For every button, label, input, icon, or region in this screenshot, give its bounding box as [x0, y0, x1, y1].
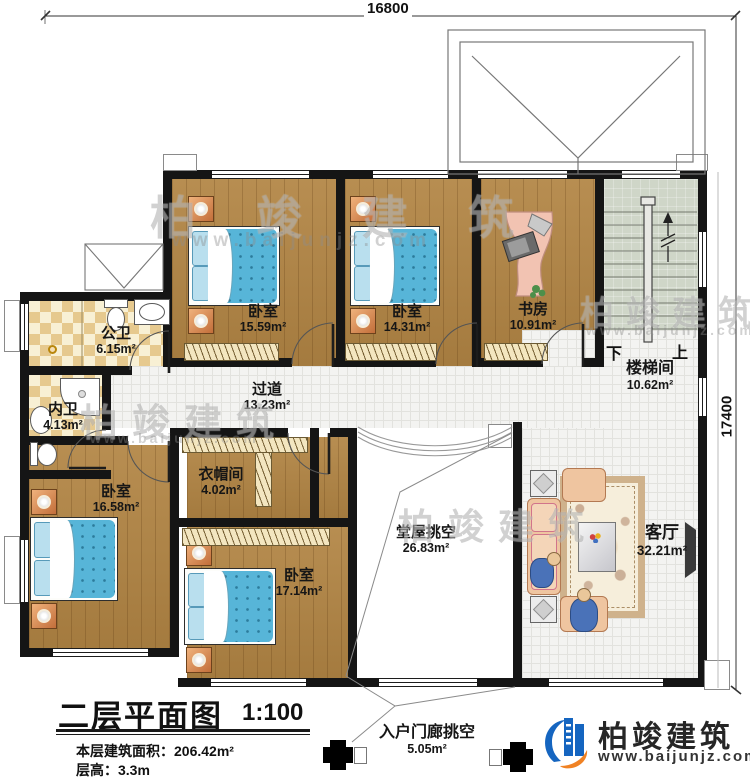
toilet-bowl [37, 443, 57, 466]
wall [348, 428, 357, 687]
porch-column [503, 742, 533, 772]
floor-area-line: 本层建筑面积：206.42m² [76, 741, 234, 761]
wardrobe [182, 528, 330, 546]
room-label-stairwell: 楼梯间10.62m² [626, 360, 674, 393]
wall [310, 428, 319, 527]
room-label-living-room: 客厅32.21m² [637, 523, 687, 558]
nightstand [350, 308, 376, 334]
wall [306, 678, 379, 687]
title-underline-thin [56, 734, 310, 735]
wardrobe [345, 343, 437, 361]
wall [170, 428, 179, 657]
arch-pier [488, 424, 512, 448]
wall [178, 678, 211, 687]
window [698, 232, 707, 287]
sink-basin [139, 303, 165, 321]
stair-up-label: 上 [672, 339, 688, 363]
window-sill [4, 536, 20, 604]
column-bracket [354, 747, 367, 764]
window [211, 678, 306, 687]
room-label-bedroom-bottom: 卧室17.14m² [276, 567, 323, 599]
window [53, 648, 148, 657]
company-website: www.baijunjz.com [598, 748, 750, 765]
side-table [530, 470, 557, 497]
title-underline-thick [56, 729, 310, 732]
watermark-url: www.baijunjz.com [90, 430, 259, 446]
nightstand [186, 647, 212, 673]
window-sill [676, 154, 708, 171]
watermark-url: www.baijunjz.com [172, 230, 432, 252]
window-sill [704, 660, 730, 690]
window [20, 540, 29, 602]
bed [184, 568, 276, 645]
wall [20, 470, 111, 479]
person [566, 588, 602, 632]
bed-sheet [204, 571, 228, 642]
window-sill [4, 300, 20, 352]
room-label-study: 书房10.91m² [510, 301, 557, 333]
plan-scale: 1:100 [242, 699, 303, 727]
column-bracket [489, 749, 502, 766]
window [698, 378, 707, 416]
bed [30, 517, 118, 601]
watermark-text: 柏竣建筑 [398, 498, 598, 550]
person [530, 550, 562, 588]
dimension-right: 17400 [718, 396, 735, 438]
wall [178, 518, 357, 527]
wall [513, 422, 522, 687]
room-label-private-bath: 内卫4.13m² [43, 401, 83, 433]
window [373, 170, 448, 179]
window-sill [163, 154, 197, 171]
floor-plan-canvas: 柏竣建筑 www.baijunjz.com 柏竣建筑 www.baijunjz.… [0, 0, 750, 781]
nightstand [31, 603, 57, 629]
room-label-bedroom-left: 卧室16.58m² [93, 483, 140, 515]
stair-down-label: 下 [606, 340, 622, 364]
window [379, 678, 477, 687]
window [212, 170, 309, 179]
wardrobe [255, 452, 272, 507]
floor-height-line: 层高：3.3m [76, 760, 150, 780]
window [549, 678, 663, 687]
wardrobe [184, 343, 279, 361]
side-table [530, 596, 557, 623]
room-label-cloakroom: 衣帽间4.02m² [198, 466, 243, 498]
armchair [562, 468, 606, 502]
room-label-bedroom-top-left: 卧室15.59m² [240, 303, 287, 335]
room-label-public-bath: 公卫6.15m² [96, 325, 136, 357]
wall [20, 366, 132, 375]
room-label-porch-void: 入户门廊挑空5.05m² [379, 724, 475, 757]
porch-column [323, 740, 353, 770]
watermark-url: www.baijunjz.com [586, 322, 750, 338]
window [20, 304, 29, 350]
person-head [547, 552, 561, 566]
nightstand [188, 308, 214, 334]
person-head [577, 588, 591, 602]
room-label-bedroom-top-mid: 卧室14.31m² [384, 303, 431, 335]
bed-sheet [50, 520, 74, 598]
nightstand [31, 489, 57, 515]
window [478, 170, 567, 179]
wardrobe [484, 343, 548, 361]
dimension-top: 16800 [364, 0, 412, 17]
window [622, 170, 680, 179]
floor-drain [48, 345, 57, 354]
person-body [570, 598, 598, 632]
company-logo-icon [540, 710, 592, 770]
